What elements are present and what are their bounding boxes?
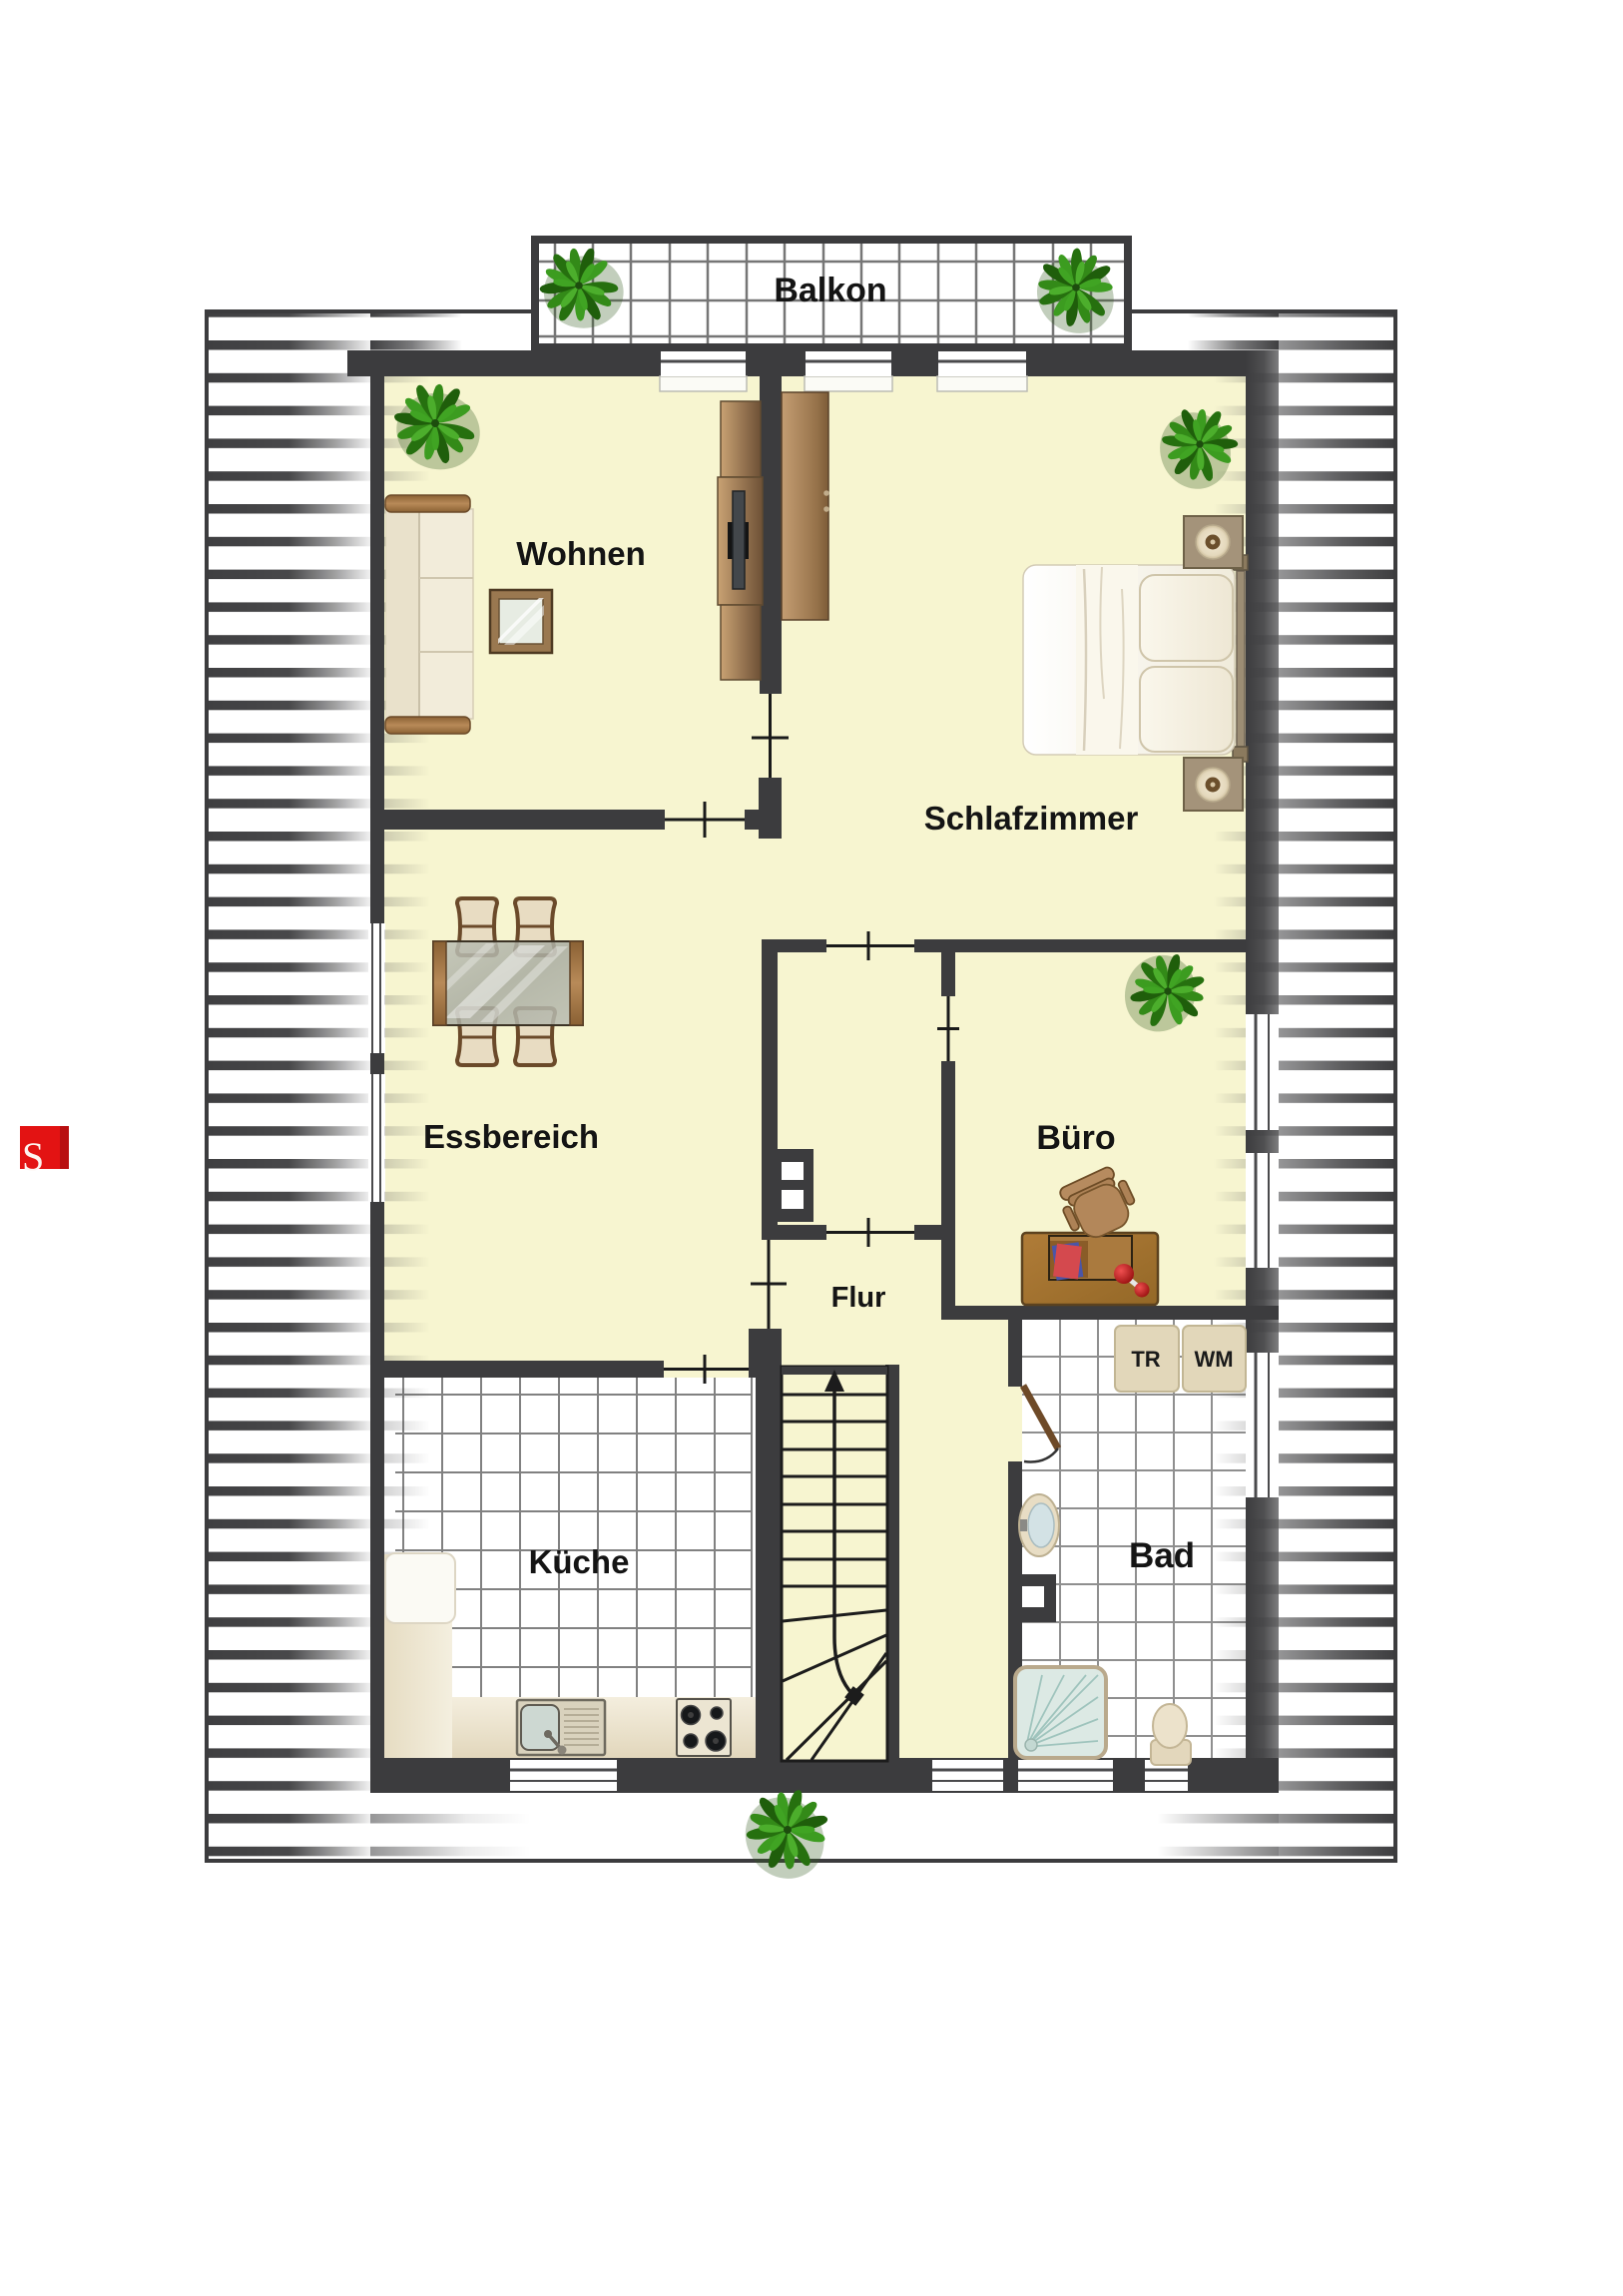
- svg-text:Bad: Bad: [1129, 1536, 1195, 1575]
- svg-text:Büro: Büro: [1036, 1119, 1115, 1157]
- svg-text:TR: TR: [1131, 1347, 1160, 1372]
- svg-text:WM: WM: [1194, 1347, 1233, 1372]
- svg-text:Küche: Küche: [529, 1543, 630, 1580]
- svg-text:Flur: Flur: [831, 1282, 886, 1314]
- svg-text:Schlafzimmer: Schlafzimmer: [924, 800, 1139, 837]
- svg-text:Wohnen: Wohnen: [516, 535, 646, 572]
- svg-text:Balkon: Balkon: [774, 272, 886, 309]
- svg-text:S: S: [22, 1134, 44, 1179]
- svg-text:Essbereich: Essbereich: [423, 1118, 599, 1155]
